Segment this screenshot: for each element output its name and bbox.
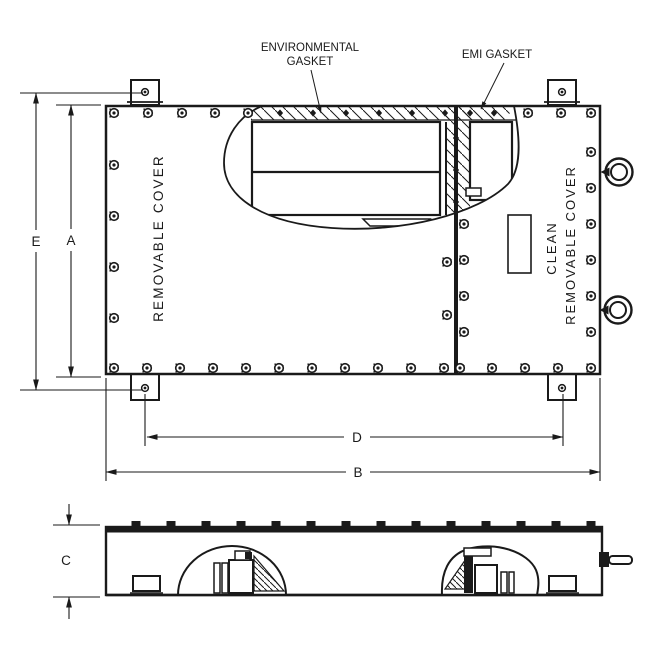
dimension-D: D bbox=[145, 394, 563, 446]
dimension-D-label: D bbox=[352, 430, 362, 445]
bolt-icon bbox=[143, 364, 152, 373]
bolt-icon bbox=[488, 364, 497, 373]
bolt-icon bbox=[244, 109, 253, 118]
environmental-gasket-callout-line2: GASKET bbox=[287, 56, 334, 68]
dimension-A: A bbox=[56, 105, 101, 377]
top-view: REMOVABLE COVER CLEAN REMOVABLE COVER bbox=[106, 80, 633, 400]
bolt-icon bbox=[587, 256, 596, 265]
bolt-icon bbox=[110, 263, 119, 272]
dimension-C: C bbox=[53, 504, 100, 619]
emi-gasket-callout: EMI GASKET bbox=[462, 49, 532, 61]
enclosure-assembly-drawing: REMOVABLE COVER CLEAN REMOVABLE COVER bbox=[0, 0, 650, 650]
emi-gasket-leader bbox=[481, 63, 504, 109]
bolt-icon bbox=[110, 161, 119, 170]
bolt-icon bbox=[178, 109, 187, 118]
bolt-icon bbox=[211, 109, 220, 118]
bolt-icon bbox=[407, 364, 416, 373]
bolt-icon bbox=[460, 292, 469, 301]
technical-drawing-page: REMOVABLE COVER CLEAN REMOVABLE COVER bbox=[0, 0, 650, 650]
bolt-icon bbox=[587, 364, 596, 373]
right-cover-label-line2: REMOVABLE COVER bbox=[563, 165, 578, 325]
bolt-icon bbox=[554, 364, 563, 373]
cover-plate-edge bbox=[252, 122, 440, 215]
bolt-icon bbox=[587, 184, 596, 193]
bolt-icon bbox=[341, 364, 350, 373]
bolt-icon bbox=[443, 258, 452, 267]
bolt-icon bbox=[308, 364, 317, 373]
bolt-icon bbox=[524, 109, 533, 118]
bolt-icon bbox=[443, 311, 452, 320]
bolt-icon bbox=[110, 314, 119, 323]
bolt-icon bbox=[460, 256, 469, 265]
bolt-icon bbox=[587, 109, 596, 118]
side-view bbox=[106, 521, 632, 595]
tab-bolt-icon bbox=[142, 89, 149, 96]
lifting-ring-icon bbox=[601, 159, 633, 186]
lifting-ring-icon bbox=[600, 297, 632, 324]
tab-bolt-icon bbox=[559, 89, 566, 96]
bolt-icon bbox=[144, 109, 153, 118]
bolt-icon bbox=[110, 212, 119, 221]
bolt-icon bbox=[521, 364, 530, 373]
environmental-gasket-callout-line1: ENVIRONMENTAL bbox=[261, 42, 360, 54]
right-cover-label-line1: CLEAN bbox=[544, 221, 559, 274]
bolt-icon bbox=[587, 148, 596, 157]
left-cover-label: REMOVABLE COVER bbox=[151, 154, 166, 322]
bolt-icon bbox=[587, 328, 596, 337]
bolt-icon bbox=[374, 364, 383, 373]
side-foot-right bbox=[546, 576, 579, 593]
dimension-A-label: A bbox=[66, 233, 75, 248]
side-foot-left bbox=[130, 576, 163, 593]
nameplate bbox=[508, 215, 531, 273]
bolt-icon bbox=[460, 220, 469, 229]
bolt-icon bbox=[242, 364, 251, 373]
tab-bolt-icon bbox=[559, 385, 566, 392]
callouts: ENVIRONMENTAL GASKET EMI GASKET bbox=[261, 42, 532, 113]
bolt-icon bbox=[176, 364, 185, 373]
bolt-icon bbox=[440, 364, 449, 373]
bolt-icon bbox=[110, 364, 119, 373]
dimension-C-label: C bbox=[61, 553, 71, 568]
dimension-E-label: E bbox=[31, 234, 40, 249]
bolt-icon bbox=[587, 292, 596, 301]
bolt-icon bbox=[557, 109, 566, 118]
bolt-icon bbox=[275, 364, 284, 373]
bolt-icon bbox=[209, 364, 218, 373]
bolt-icon bbox=[456, 364, 465, 373]
bolt-icon bbox=[587, 220, 596, 229]
side-pin bbox=[599, 552, 632, 567]
dimension-B-label: B bbox=[353, 465, 362, 480]
bolt-icon bbox=[460, 328, 469, 337]
bolt-icon bbox=[110, 109, 119, 118]
